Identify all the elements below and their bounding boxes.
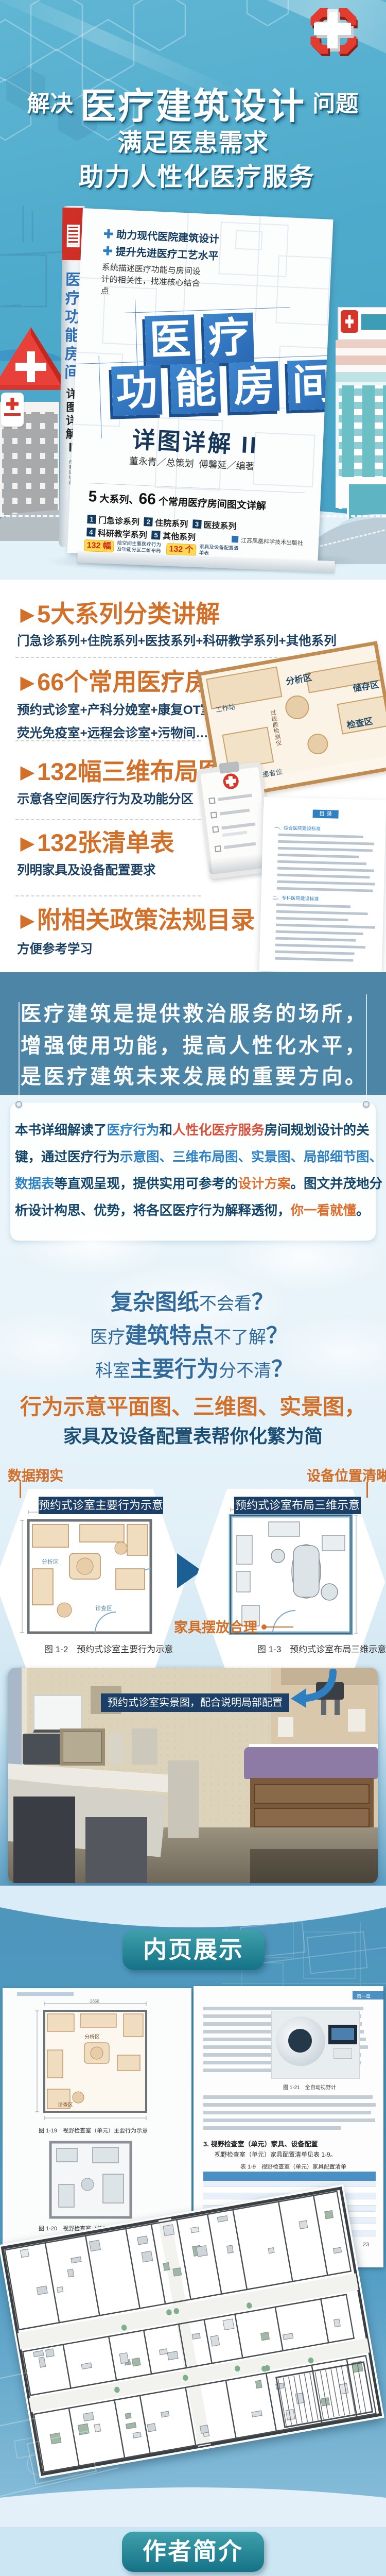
svg-text:分析区: 分析区 xyxy=(84,2033,100,2040)
svg-text:诊查区: 诊查区 xyxy=(95,1604,112,1612)
svg-text:2650: 2650 xyxy=(90,1999,99,2004)
svg-text:分析区: 分析区 xyxy=(42,1558,59,1565)
svg-text:诊查区: 诊查区 xyxy=(58,2102,73,2108)
